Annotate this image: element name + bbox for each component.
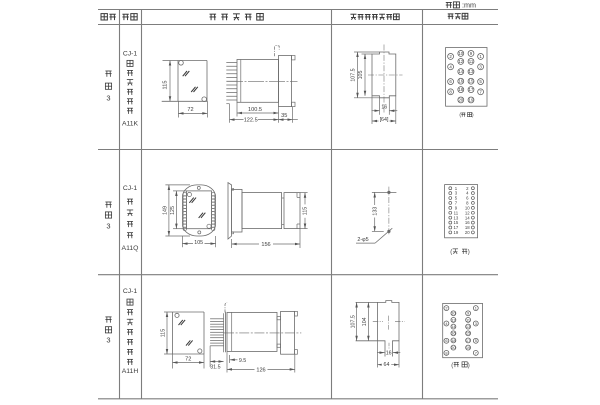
svg-text:A11H: A11H — [122, 368, 139, 375]
svg-text:125: 125 — [170, 206, 176, 215]
svg-text:18: 18 — [451, 338, 455, 343]
svg-text:A11K: A11K — [122, 120, 139, 127]
svg-text:2-φ5: 2-φ5 — [357, 237, 368, 243]
svg-text:115: 115 — [161, 329, 167, 337]
svg-text:72: 72 — [187, 107, 193, 113]
svg-text:100.5: 100.5 — [248, 107, 262, 113]
svg-text:115: 115 — [303, 207, 309, 215]
svg-text:CJ-1: CJ-1 — [123, 288, 138, 295]
svg-text:35: 35 — [281, 113, 287, 119]
svg-text:): ) — [468, 363, 470, 369]
svg-text:133: 133 — [372, 207, 378, 216]
svg-text:(: ( — [451, 363, 453, 369]
svg-text:A11Q: A11Q — [122, 245, 139, 252]
svg-text:13: 13 — [469, 69, 474, 74]
svg-text:31.5: 31.5 — [210, 364, 220, 370]
svg-text:19: 19 — [469, 97, 474, 102]
svg-text:6: 6 — [445, 338, 447, 343]
svg-text:107.5: 107.5 — [350, 68, 356, 81]
svg-text:20: 20 — [465, 230, 470, 235]
svg-text:16: 16 — [451, 331, 455, 336]
svg-text:19: 19 — [466, 345, 470, 350]
svg-text:72: 72 — [185, 356, 191, 362]
svg-text:(: ( — [459, 113, 461, 119]
svg-text:16: 16 — [381, 105, 387, 111]
svg-text:16: 16 — [386, 351, 392, 357]
svg-text:17: 17 — [469, 87, 474, 92]
svg-text:15: 15 — [469, 79, 474, 84]
svg-text:20: 20 — [458, 97, 463, 102]
svg-text:3: 3 — [106, 221, 110, 230]
svg-text:104: 104 — [362, 317, 368, 326]
svg-text:1: 1 — [475, 306, 477, 311]
svg-text:156: 156 — [261, 242, 270, 248]
svg-text:13: 13 — [466, 324, 470, 329]
svg-text:8: 8 — [445, 350, 447, 355]
svg-text:105: 105 — [194, 240, 203, 246]
svg-text:16: 16 — [458, 79, 463, 84]
svg-text:9: 9 — [467, 311, 469, 316]
svg-text:7: 7 — [475, 350, 477, 355]
svg-text:10: 10 — [458, 51, 463, 56]
svg-text:126: 126 — [256, 367, 265, 373]
svg-text:115: 115 — [163, 81, 169, 90]
svg-text:(: ( — [450, 250, 452, 256]
svg-text:11: 11 — [469, 59, 474, 64]
svg-text:15: 15 — [466, 331, 470, 336]
svg-text:64: 64 — [384, 362, 390, 368]
svg-text:CJ-1: CJ-1 — [123, 50, 138, 57]
svg-text:122.5: 122.5 — [244, 118, 258, 124]
svg-text:105: 105 — [358, 71, 364, 80]
svg-text:5: 5 — [475, 338, 477, 343]
svg-text:12: 12 — [458, 59, 463, 64]
svg-text:[64]: [64] — [380, 117, 389, 123]
svg-text:CJ-1: CJ-1 — [123, 185, 138, 192]
svg-text:107.5: 107.5 — [350, 315, 356, 328]
svg-text:17: 17 — [466, 338, 470, 343]
svg-text:3: 3 — [106, 94, 110, 103]
svg-text:12: 12 — [451, 317, 455, 322]
svg-text:3: 3 — [475, 321, 477, 326]
svg-text:): ) — [468, 250, 470, 256]
svg-text:2: 2 — [445, 306, 447, 311]
svg-text:14: 14 — [458, 69, 463, 74]
svg-text::mm: :mm — [462, 1, 476, 10]
svg-text:): ) — [472, 113, 474, 119]
svg-text:18: 18 — [458, 87, 463, 92]
svg-text:9.5: 9.5 — [239, 358, 246, 364]
svg-text:19: 19 — [454, 230, 459, 235]
svg-text:149: 149 — [163, 206, 169, 215]
svg-text:3: 3 — [106, 335, 110, 344]
svg-text:11: 11 — [466, 317, 470, 322]
